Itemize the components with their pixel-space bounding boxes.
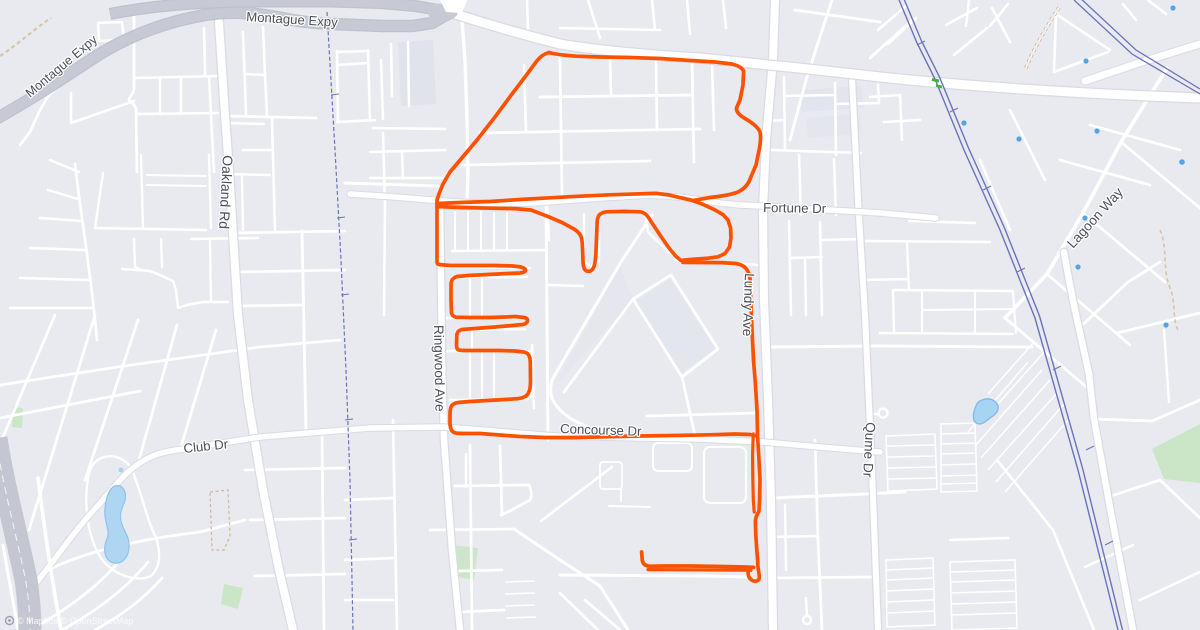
svg-text:Lundy Ave: Lundy Ave (740, 273, 757, 337)
svg-text:Fortune Dr: Fortune Dr (763, 200, 827, 216)
svg-text:© Mapbox © OpenStreetMap: © Mapbox © OpenStreetMap (17, 616, 133, 626)
svg-text:Concourse Dr: Concourse Dr (560, 421, 642, 439)
svg-text:Ringwood Ave: Ringwood Ave (431, 325, 448, 412)
svg-text:Qume Dr: Qume Dr (860, 422, 878, 478)
